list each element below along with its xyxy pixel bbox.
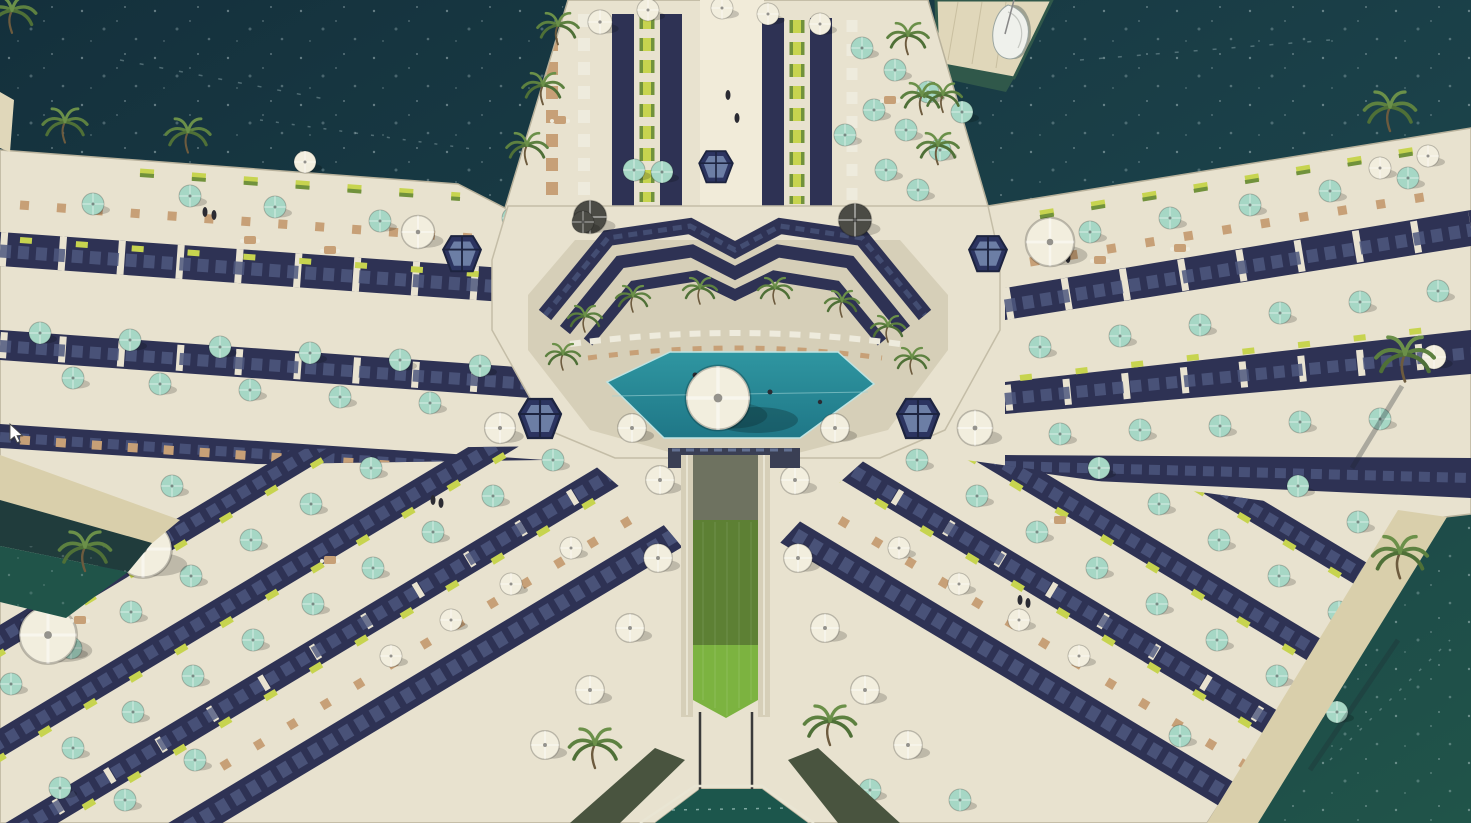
render-canvas: [0, 0, 1471, 823]
screenshot-root: [0, 0, 1471, 823]
